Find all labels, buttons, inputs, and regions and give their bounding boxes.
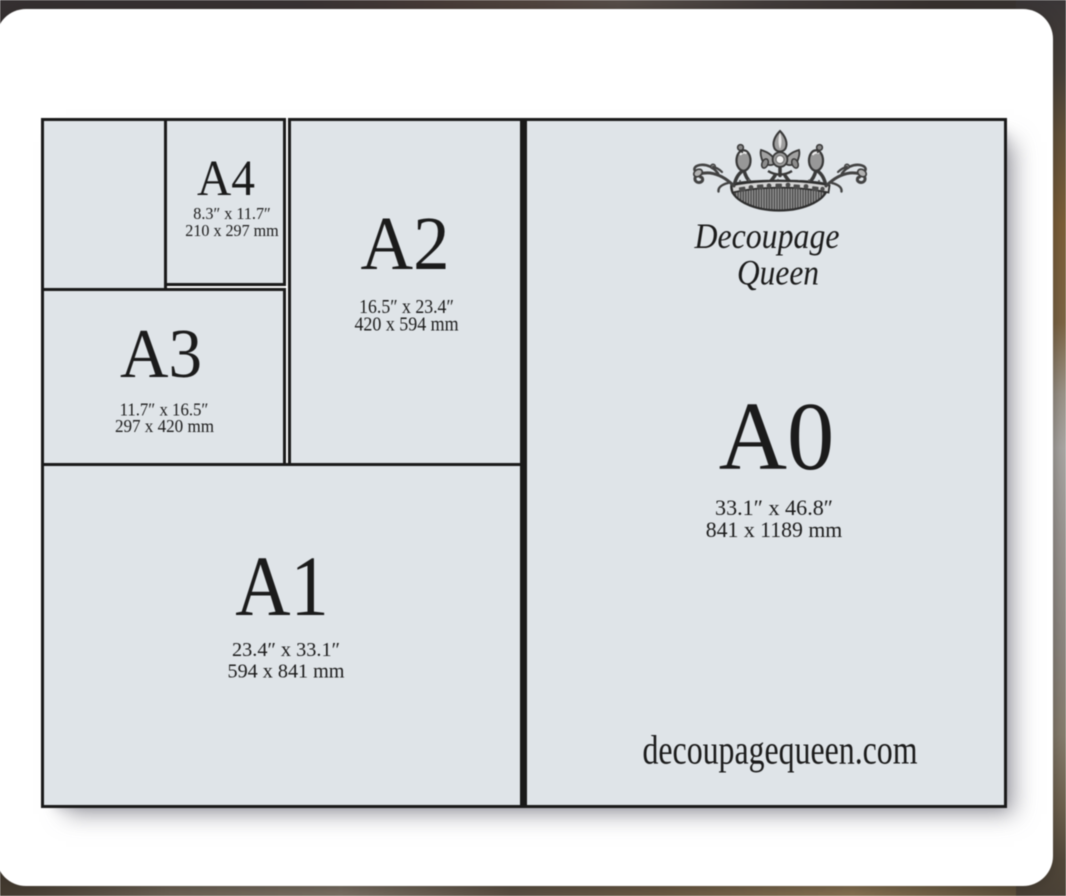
svg-text:decoupagequeen.com: decoupagequeen.com — [643, 727, 918, 773]
svg-text:A0: A0 — [719, 383, 835, 490]
svg-text:A1: A1 — [235, 538, 329, 634]
svg-text:210 x 297 mm: 210 x 297 mm — [185, 221, 278, 240]
svg-text:594 x 841 mm: 594 x 841 mm — [228, 661, 345, 683]
svg-text:420 x 594 mm: 420 x 594 mm — [354, 315, 458, 336]
svg-text:23.4″ x 33.1″: 23.4″ x 33.1″ — [232, 639, 340, 661]
svg-text:Decoupage: Decoupage — [694, 216, 840, 256]
svg-text:Queen: Queen — [737, 253, 819, 293]
svg-text:841 x 1189 mm: 841 x 1189 mm — [706, 517, 843, 542]
svg-text:297 x 420 mm: 297 x 420 mm — [115, 416, 214, 436]
svg-text:A2: A2 — [361, 202, 450, 286]
svg-text:A3: A3 — [120, 316, 202, 393]
svg-text:A4: A4 — [197, 151, 255, 207]
